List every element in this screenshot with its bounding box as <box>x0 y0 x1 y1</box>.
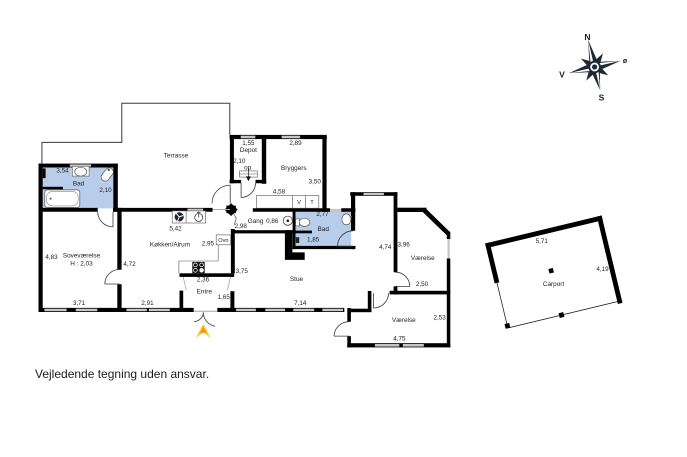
svg-text:5,42: 5,42 <box>169 226 182 233</box>
svg-text:1,85: 1,85 <box>307 237 320 244</box>
svg-text:2,77: 2,77 <box>316 211 329 218</box>
svg-text:4,19: 4,19 <box>596 266 609 273</box>
svg-text:7,14: 7,14 <box>294 300 307 307</box>
svg-text:Stue: Stue <box>290 276 304 283</box>
svg-text:2,89: 2,89 <box>289 140 302 147</box>
svg-text:V: V <box>559 69 565 79</box>
svg-text:ø: ø <box>623 58 628 65</box>
svg-text:H : 2,03: H : 2,03 <box>70 261 93 268</box>
svg-text:Depot: Depot <box>240 147 257 154</box>
svg-text:3,54: 3,54 <box>56 168 69 175</box>
svg-text:Bad: Bad <box>73 180 85 187</box>
svg-text:4,58: 4,58 <box>273 189 286 196</box>
svg-text:Ovn: Ovn <box>218 238 228 244</box>
svg-text:4,74: 4,74 <box>379 244 392 251</box>
svg-text:V: V <box>297 200 301 206</box>
svg-text:N: N <box>584 32 590 42</box>
svg-text:Værelse: Værelse <box>392 317 416 324</box>
svg-text:2,91: 2,91 <box>141 300 154 307</box>
svg-text:2,98: 2,98 <box>235 223 248 230</box>
svg-text:2,53: 2,53 <box>433 315 446 322</box>
svg-text:Carport: Carport <box>543 281 565 288</box>
svg-text:Bryggers: Bryggers <box>281 165 307 172</box>
svg-text:Vejledende tegning uden ansvar: Vejledende tegning uden ansvar. <box>35 367 209 381</box>
svg-text:Terrasse: Terrasse <box>164 153 189 160</box>
svg-text:Gang: Gang <box>248 218 264 225</box>
svg-text:Køkken/Alrum: Køkken/Alrum <box>150 242 190 249</box>
svg-text:3,50: 3,50 <box>309 178 322 185</box>
svg-text:3,96: 3,96 <box>397 242 410 249</box>
svg-text:2,50: 2,50 <box>416 281 429 288</box>
svg-text:T: T <box>310 200 314 206</box>
svg-text:2,10: 2,10 <box>99 187 112 194</box>
svg-text:op: op <box>244 164 252 171</box>
svg-text:1,55: 1,55 <box>242 140 255 147</box>
svg-text:4,75: 4,75 <box>393 336 406 343</box>
svg-text:3,71: 3,71 <box>73 300 86 307</box>
svg-text:S: S <box>599 93 605 103</box>
svg-text:2,36: 2,36 <box>197 277 210 284</box>
svg-text:Entre: Entre <box>197 289 213 296</box>
svg-text:0,86: 0,86 <box>266 218 279 225</box>
svg-text:5,71: 5,71 <box>536 238 549 245</box>
svg-text:2,95: 2,95 <box>202 241 215 248</box>
svg-text:Soveværelse: Soveværelse <box>63 253 101 260</box>
svg-text:1,65: 1,65 <box>218 294 231 301</box>
svg-text:4,83: 4,83 <box>45 254 58 261</box>
svg-text:2,10: 2,10 <box>233 158 246 165</box>
svg-text:3,75: 3,75 <box>236 268 249 275</box>
svg-text:4,72: 4,72 <box>123 261 136 268</box>
svg-text:Bad: Bad <box>318 226 330 233</box>
svg-text:Værelse: Værelse <box>411 255 435 262</box>
